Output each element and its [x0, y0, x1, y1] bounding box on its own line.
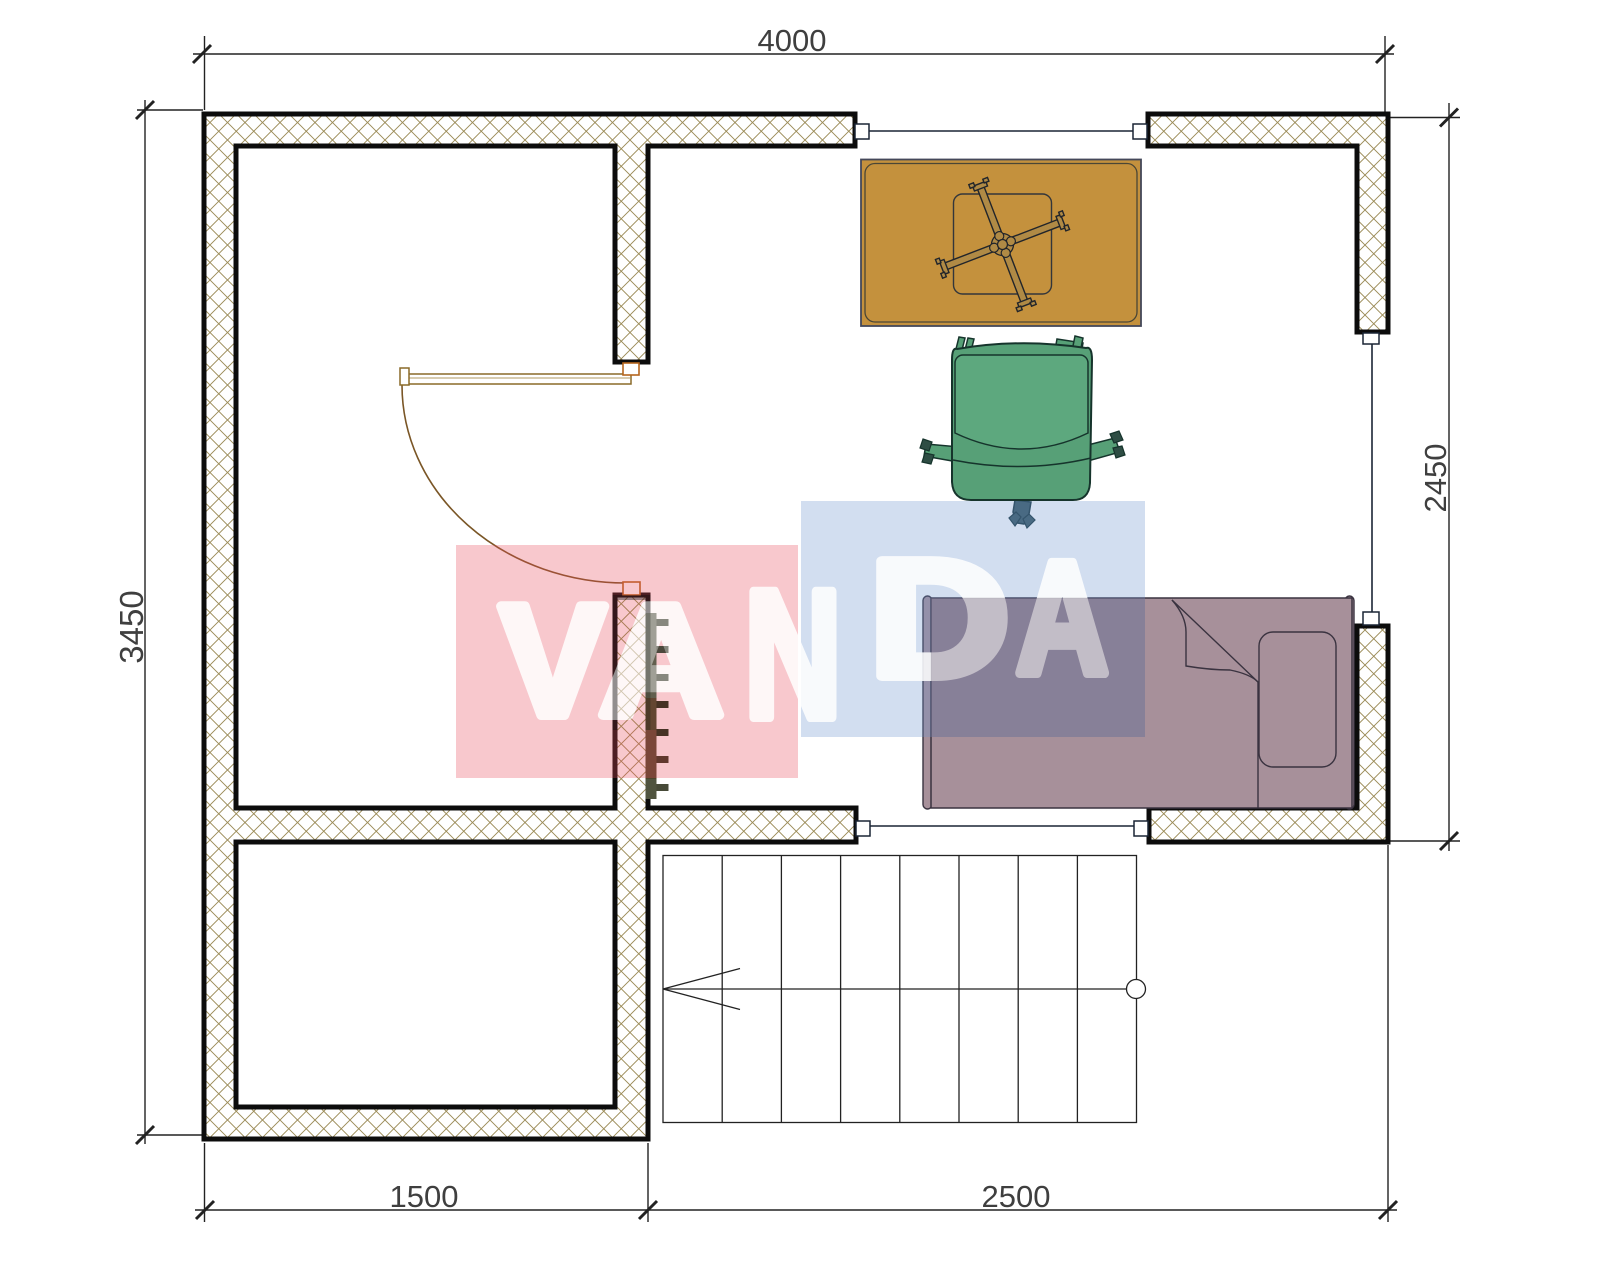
- svg-text:3450: 3450: [113, 590, 150, 663]
- svg-text:1500: 1500: [390, 1179, 459, 1214]
- svg-text:N: N: [744, 554, 842, 757]
- svg-text:2500: 2500: [982, 1179, 1051, 1214]
- svg-text:V: V: [500, 573, 605, 749]
- svg-text:2450: 2450: [1418, 444, 1453, 513]
- svg-text:4000: 4000: [758, 23, 827, 58]
